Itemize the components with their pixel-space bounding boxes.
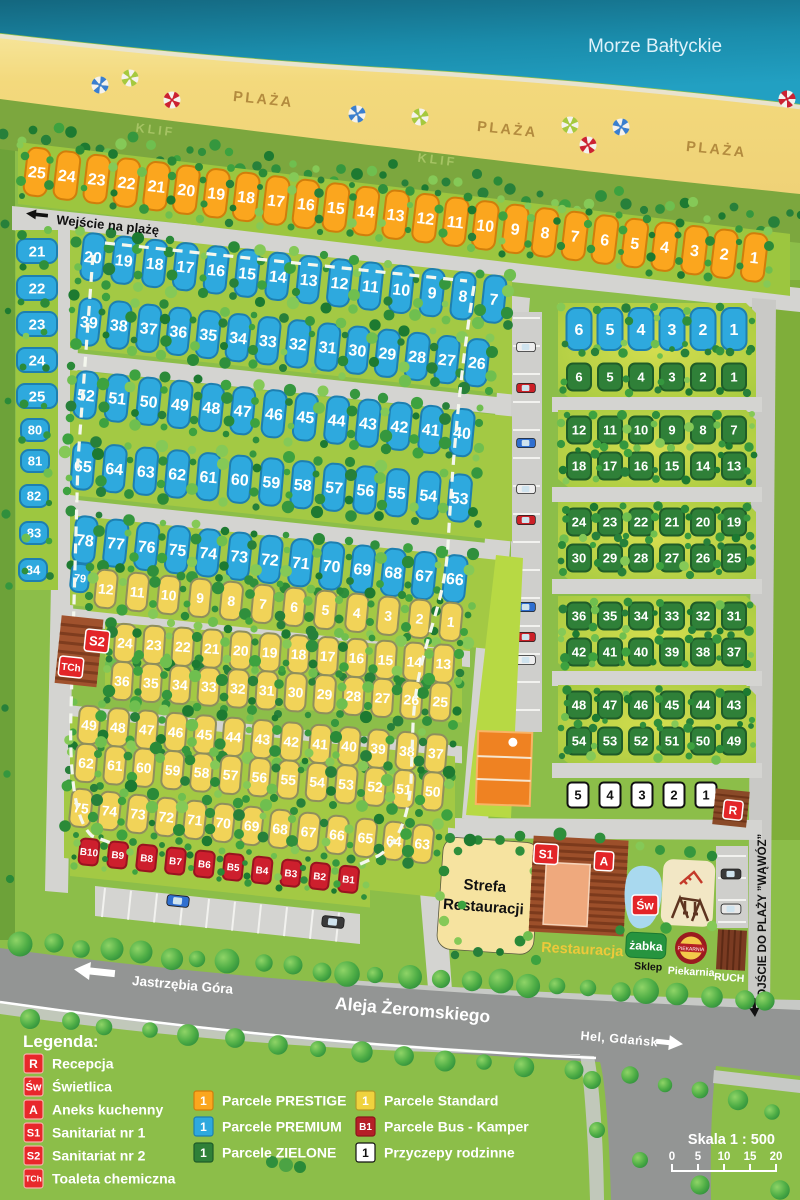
svg-text:11: 11 [446,214,465,233]
svg-text:59: 59 [262,474,281,492]
svg-text:15: 15 [665,459,679,474]
svg-text:36: 36 [572,609,586,624]
svg-text:67: 67 [414,568,434,587]
svg-text:21: 21 [665,515,679,530]
svg-text:60: 60 [135,759,152,776]
svg-text:2: 2 [699,370,706,385]
svg-text:3: 3 [668,370,675,385]
svg-text:1: 1 [200,1120,207,1134]
svg-text:28: 28 [407,348,427,367]
svg-text:S1: S1 [538,847,554,862]
svg-text:1: 1 [200,1094,207,1108]
svg-text:1: 1 [730,322,739,339]
svg-text:64: 64 [105,461,124,479]
svg-text:17: 17 [266,192,286,211]
svg-text:14: 14 [356,203,376,222]
svg-text:15: 15 [744,1151,757,1163]
svg-text:43: 43 [727,698,741,713]
svg-text:47: 47 [233,403,253,422]
svg-text:31: 31 [318,339,338,358]
svg-text:23: 23 [146,636,163,653]
svg-text:33: 33 [665,609,679,624]
svg-text:50: 50 [139,393,159,412]
svg-text:46: 46 [167,723,184,740]
svg-text:B7: B7 [168,856,182,868]
svg-text:55: 55 [387,485,406,503]
svg-text:16: 16 [348,650,365,667]
svg-text:B9: B9 [111,850,125,862]
svg-text:31: 31 [258,682,275,699]
svg-text:72: 72 [260,551,280,570]
svg-text:S2: S2 [27,1150,40,1162]
svg-text:22: 22 [117,174,137,193]
svg-text:65: 65 [357,829,374,847]
svg-text:32: 32 [288,336,308,355]
svg-text:20: 20 [176,182,196,201]
svg-text:B10: B10 [79,847,99,860]
svg-text:50: 50 [424,783,441,800]
svg-text:74: 74 [198,545,218,564]
svg-text:11: 11 [129,583,145,600]
svg-text:13: 13 [386,206,406,225]
svg-text:58: 58 [193,764,210,781]
svg-text:34: 34 [228,330,248,349]
svg-text:76: 76 [137,538,157,557]
svg-text:26: 26 [696,551,710,566]
svg-text:22: 22 [29,280,46,297]
svg-text:8: 8 [699,423,706,438]
svg-text:59: 59 [164,761,181,778]
svg-text:TCh: TCh [25,1174,42,1184]
svg-text:Świetlica: Świetlica [52,1078,112,1095]
svg-text:B3: B3 [284,868,298,880]
svg-text:A: A [599,854,609,868]
svg-text:29: 29 [603,551,617,566]
svg-text:58: 58 [293,477,312,495]
svg-text:21: 21 [29,243,46,260]
svg-text:32: 32 [696,609,710,624]
svg-text:Toaleta chemiczna: Toaleta chemiczna [52,1171,176,1187]
svg-text:34: 34 [634,609,649,624]
svg-text:12: 12 [97,580,114,597]
svg-text:A: A [29,1103,38,1117]
svg-text:18: 18 [236,189,256,208]
svg-text:5: 5 [606,322,615,339]
svg-text:10: 10 [718,1151,731,1163]
svg-text:2: 2 [670,788,677,803]
svg-text:63: 63 [414,835,431,853]
svg-text:26: 26 [467,355,487,374]
svg-text:25: 25 [727,551,741,566]
svg-text:27: 27 [374,689,391,706]
svg-text:11: 11 [603,423,617,438]
svg-text:9: 9 [668,423,675,438]
svg-text:Aneks kuchenny: Aneks kuchenny [52,1102,163,1118]
svg-text:19: 19 [261,644,278,661]
svg-text:20: 20 [696,515,710,530]
svg-text:17: 17 [319,648,336,665]
svg-text:10: 10 [634,423,648,438]
svg-text:17: 17 [176,259,196,278]
svg-text:23: 23 [87,171,107,190]
svg-text:24: 24 [117,635,134,652]
svg-text:18: 18 [290,646,307,663]
svg-text:13: 13 [727,459,741,474]
svg-text:22: 22 [175,638,192,655]
svg-text:35: 35 [143,674,160,691]
svg-text:57: 57 [324,479,343,497]
svg-text:14: 14 [268,268,288,287]
svg-text:B5: B5 [226,862,240,874]
svg-text:80: 80 [28,423,42,438]
svg-text:73: 73 [229,548,249,567]
svg-text:Parcele PREMIUM: Parcele PREMIUM [222,1119,342,1135]
svg-text:82: 82 [27,489,41,504]
svg-text:48: 48 [109,719,126,736]
svg-text:47: 47 [138,721,155,738]
svg-text:42: 42 [572,645,586,660]
svg-text:B2: B2 [313,871,327,883]
svg-text:67: 67 [300,823,317,841]
svg-text:TCh: TCh [61,662,81,675]
svg-text:25: 25 [432,693,449,710]
svg-text:30: 30 [572,551,586,566]
svg-text:22: 22 [634,515,648,530]
svg-text:15: 15 [326,199,346,218]
svg-text:13: 13 [435,655,452,672]
svg-text:42: 42 [390,418,410,437]
svg-text:43: 43 [358,415,378,434]
svg-text:25: 25 [29,388,46,405]
svg-text:Przyczepy rodzinne: Przyczepy rodzinne [384,1145,515,1161]
svg-text:52: 52 [76,387,96,406]
svg-text:33: 33 [201,678,218,695]
svg-text:Legenda:: Legenda: [23,1032,99,1051]
svg-text:62: 62 [78,754,95,771]
svg-text:30: 30 [348,342,368,361]
svg-text:17: 17 [603,459,617,474]
svg-text:52: 52 [634,734,648,749]
svg-text:B1: B1 [359,1122,372,1133]
svg-text:46: 46 [264,406,284,425]
svg-text:7: 7 [730,423,737,438]
svg-text:B1: B1 [342,874,356,886]
svg-text:11: 11 [361,278,380,297]
svg-text:37: 37 [427,745,444,762]
svg-text:14: 14 [696,459,711,474]
svg-text:5: 5 [574,788,581,803]
svg-text:29: 29 [316,686,333,703]
svg-text:56: 56 [356,482,375,500]
svg-text:9: 9 [427,285,438,303]
svg-text:56: 56 [251,769,268,786]
svg-text:49: 49 [170,396,190,415]
svg-text:23: 23 [603,515,617,530]
svg-text:25: 25 [27,164,47,183]
svg-text:69: 69 [353,561,373,580]
svg-text:Św: Św [636,897,654,912]
svg-text:18: 18 [572,459,586,474]
svg-text:57: 57 [222,766,239,783]
svg-text:Strefa: Strefa [463,876,507,896]
svg-text:61: 61 [106,757,123,774]
svg-text:31: 31 [727,609,741,624]
svg-text:3: 3 [668,322,677,339]
svg-text:41: 41 [603,645,617,660]
svg-text:60: 60 [230,471,249,489]
svg-text:44: 44 [696,698,711,713]
svg-text:71: 71 [291,555,311,574]
svg-text:5: 5 [606,370,613,385]
svg-text:35: 35 [603,609,617,624]
svg-text:55: 55 [280,771,297,788]
svg-text:54: 54 [309,773,326,790]
svg-text:50: 50 [696,734,710,749]
svg-text:żabka: żabka [629,938,663,954]
svg-text:2: 2 [699,322,708,339]
svg-text:43: 43 [254,731,271,748]
svg-text:40: 40 [341,738,358,755]
svg-text:42: 42 [283,733,300,750]
svg-text:49: 49 [81,716,98,733]
svg-text:Parcele Standard: Parcele Standard [384,1093,498,1109]
svg-text:66: 66 [328,826,345,844]
svg-text:29: 29 [378,345,398,364]
svg-text:5: 5 [695,1151,702,1163]
svg-text:4: 4 [637,370,645,385]
svg-text:70: 70 [215,814,232,832]
svg-text:34: 34 [172,676,189,693]
svg-text:B6: B6 [197,859,211,871]
svg-text:81: 81 [28,454,42,469]
svg-text:Recepcja: Recepcja [52,1056,114,1072]
svg-text:1: 1 [362,1146,369,1160]
svg-text:21: 21 [204,640,221,657]
svg-text:1: 1 [200,1146,207,1160]
svg-text:45: 45 [296,409,316,428]
svg-text:68: 68 [272,820,289,838]
svg-text:Sklep: Sklep [634,960,663,973]
svg-text:45: 45 [665,698,679,713]
svg-text:36: 36 [169,323,189,342]
svg-text:1: 1 [362,1094,369,1108]
svg-text:0: 0 [669,1151,675,1163]
svg-text:53: 53 [603,734,617,749]
svg-text:21: 21 [147,178,167,197]
svg-text:70: 70 [322,558,342,577]
svg-text:8: 8 [458,288,469,306]
svg-text:Św: Św [26,1080,42,1093]
svg-text:12: 12 [416,210,436,229]
svg-text:33: 33 [258,333,278,352]
svg-text:47: 47 [603,698,617,713]
svg-text:3: 3 [638,788,645,803]
svg-text:Morze Bałtyckie: Morze Bałtyckie [588,36,722,57]
svg-text:77: 77 [106,535,126,554]
svg-text:12: 12 [330,275,350,294]
svg-text:16: 16 [206,262,226,281]
svg-text:S1: S1 [27,1127,40,1139]
svg-text:78: 78 [75,532,95,551]
svg-text:28: 28 [345,688,362,705]
svg-text:6: 6 [575,370,582,385]
svg-text:30: 30 [287,684,304,701]
svg-text:61: 61 [199,469,218,487]
svg-text:46: 46 [634,698,648,713]
svg-text:24: 24 [572,515,587,530]
svg-text:44: 44 [225,728,242,745]
svg-text:62: 62 [168,466,187,484]
svg-text:Sanitariat nr 2: Sanitariat nr 2 [52,1148,146,1164]
svg-text:19: 19 [114,252,134,271]
svg-text:Parcele Bus - Kamper: Parcele Bus - Kamper [384,1119,529,1135]
svg-text:73: 73 [129,805,146,823]
svg-text:54: 54 [572,734,587,749]
svg-text:27: 27 [665,551,679,566]
svg-text:4: 4 [637,322,646,339]
svg-text:20: 20 [233,642,250,659]
svg-text:15: 15 [237,265,257,284]
svg-text:7: 7 [488,291,499,309]
svg-text:54: 54 [419,487,438,505]
svg-text:41: 41 [421,421,441,440]
svg-text:10: 10 [475,217,495,236]
svg-text:35: 35 [198,326,218,345]
svg-text:72: 72 [158,808,175,826]
svg-text:DOJŚCIE DO PLAŻY ”WĄWÓZ”: DOJŚCIE DO PLAŻY ”WĄWÓZ” [756,834,769,1006]
svg-text:10: 10 [391,281,411,300]
svg-text:18: 18 [145,255,165,274]
svg-text:Parcele PRESTIGE: Parcele PRESTIGE [222,1093,347,1109]
svg-text:19: 19 [206,185,226,204]
svg-text:Piekarnia: Piekarnia [668,965,715,979]
svg-text:45: 45 [196,726,213,743]
svg-text:16: 16 [296,196,316,215]
svg-text:38: 38 [109,317,129,336]
svg-text:51: 51 [107,390,127,409]
svg-text:53: 53 [338,776,355,793]
svg-text:24: 24 [57,167,77,186]
svg-text:B4: B4 [255,865,269,877]
svg-text:19: 19 [727,515,741,530]
svg-text:74: 74 [101,802,118,820]
svg-text:39: 39 [665,645,679,660]
svg-text:40: 40 [634,645,648,660]
svg-text:13: 13 [299,272,319,291]
svg-text:R: R [29,1057,38,1071]
svg-text:10: 10 [160,586,177,603]
svg-text:68: 68 [383,564,403,583]
svg-text:20: 20 [770,1151,783,1163]
svg-text:28: 28 [634,551,648,566]
svg-text:71: 71 [186,811,203,829]
svg-text:14: 14 [406,653,423,670]
svg-text:27: 27 [437,352,457,371]
svg-text:36: 36 [114,673,131,690]
svg-text:15: 15 [377,651,394,668]
svg-text:16: 16 [634,459,648,474]
svg-text:6: 6 [575,322,584,339]
svg-text:37: 37 [727,645,741,660]
svg-text:38: 38 [696,645,710,660]
svg-text:37: 37 [139,320,159,339]
svg-text:B8: B8 [140,853,154,865]
svg-text:12: 12 [572,423,586,438]
svg-text:51: 51 [665,734,679,749]
svg-text:RUCH: RUCH [714,971,745,985]
svg-text:66: 66 [445,571,465,590]
svg-text:Parcele ZIELONE: Parcele ZIELONE [222,1145,336,1161]
svg-text:41: 41 [312,735,329,752]
svg-text:63: 63 [136,463,155,481]
svg-text:32: 32 [230,680,247,697]
svg-text:Skala 1 : 500: Skala 1 : 500 [688,1132,775,1148]
svg-text:48: 48 [572,698,586,713]
svg-text:1: 1 [730,370,737,385]
svg-text:39: 39 [370,740,387,757]
svg-text:1: 1 [702,788,709,803]
svg-text:69: 69 [243,817,260,835]
svg-text:49: 49 [727,734,741,749]
svg-text:4: 4 [606,788,614,803]
svg-text:S2: S2 [88,633,105,650]
svg-text:Sanitariat nr 1: Sanitariat nr 1 [52,1125,146,1141]
svg-text:48: 48 [202,399,222,418]
svg-text:75: 75 [168,542,188,561]
svg-text:53: 53 [450,490,469,508]
svg-text:65: 65 [73,458,92,476]
svg-text:44: 44 [327,412,347,431]
svg-text:R: R [728,803,738,818]
